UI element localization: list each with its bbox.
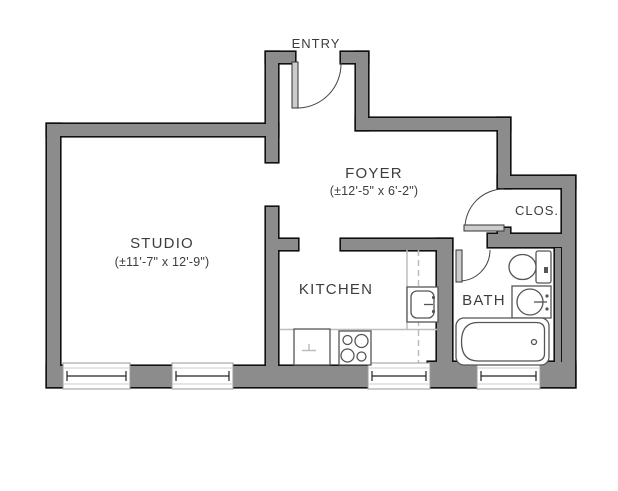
room-labels: ENTRY FOYER (±12'-5" x 6'-2") STUDIO (±1… (115, 36, 559, 309)
floor-plan: ENTRY FOYER (±12'-5" x 6'-2") STUDIO (±1… (0, 0, 618, 491)
foyer-north-wall (356, 118, 510, 130)
studio-top-wall (47, 124, 278, 136)
outer-wall-left (47, 124, 60, 387)
foyer-south-wall (341, 239, 452, 250)
entry-door (292, 62, 341, 108)
floor-plan-svg: ENTRY FOYER (±12'-5" x 6'-2") STUDIO (±1… (0, 0, 618, 491)
pipe-chase (555, 248, 561, 366)
studio-label: STUDIO (130, 235, 194, 252)
window-bath (477, 363, 540, 389)
closet-door (464, 189, 504, 231)
kitchen-fixtures (294, 287, 438, 365)
bath-label: BATH (462, 292, 506, 309)
bath-sink (512, 286, 551, 318)
studio-partition-upper (266, 52, 278, 162)
kitchen-sink (407, 287, 438, 322)
window-studio-2 (172, 363, 233, 389)
kitchen-bath-wall (437, 239, 452, 369)
kitchen-label: KITCHEN (299, 281, 373, 298)
toilet (509, 251, 551, 283)
studio-partition-lower (266, 207, 278, 373)
closet-bottom-wall (488, 234, 562, 247)
entry-label: ENTRY (292, 36, 341, 51)
foyer-dimensions: (±12'-5" x 6'-2") (330, 184, 419, 198)
stove (339, 331, 371, 365)
foyer-label: FOYER (345, 165, 403, 182)
outer-wall-right (562, 176, 575, 387)
window-kitchen (368, 363, 430, 389)
refrigerator (294, 329, 330, 365)
studio-dimensions: (±11'-7" x 12'-9") (115, 255, 210, 269)
entry-wall-left (266, 52, 295, 63)
kitchen-wall-stub (278, 239, 298, 250)
bath-door (456, 250, 490, 282)
closet-label: CLOS. (515, 203, 559, 218)
window-pier (428, 362, 477, 387)
window-studio-1 (63, 363, 130, 389)
bathtub (456, 318, 549, 365)
closet-top-wall (498, 176, 575, 188)
